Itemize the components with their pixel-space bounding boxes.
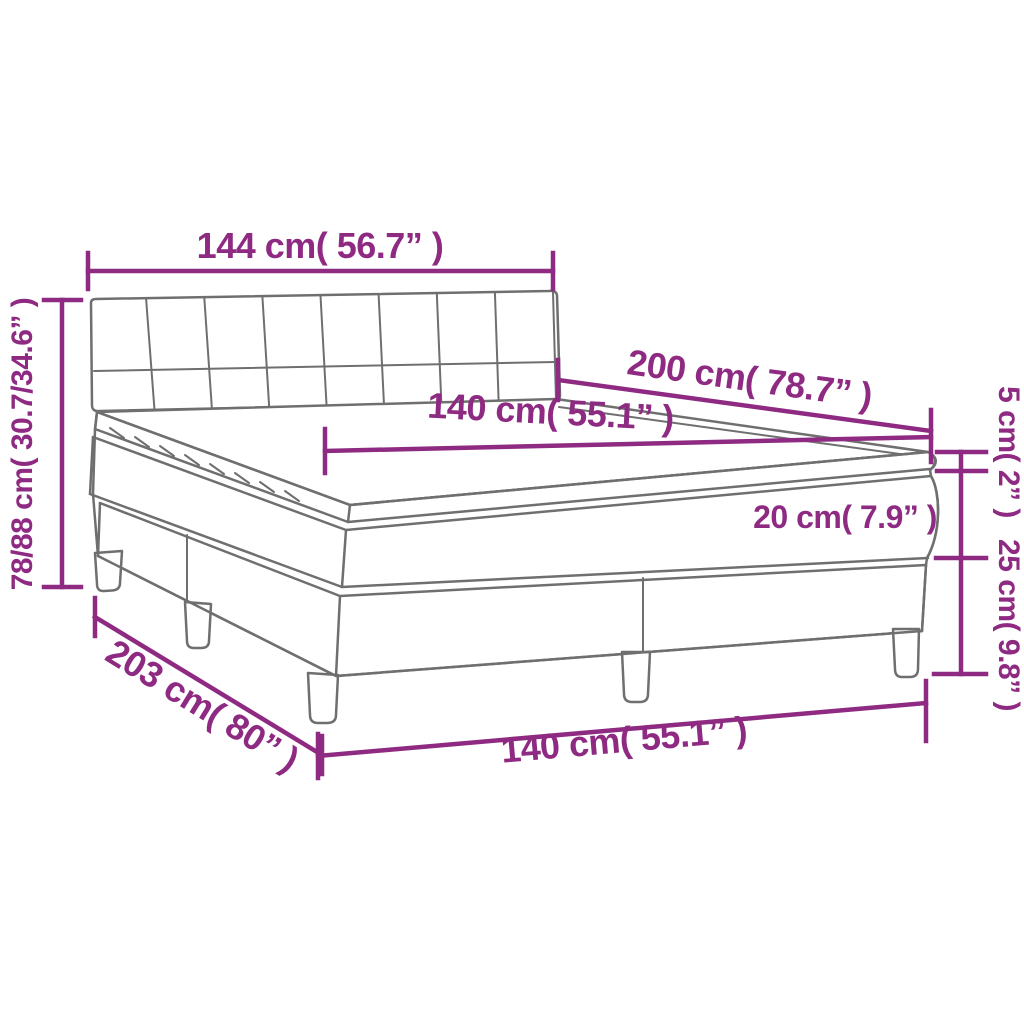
- bed-leg: [185, 602, 211, 648]
- bed-leg: [622, 652, 650, 702]
- bed-leg: [893, 629, 919, 677]
- bed-leg: [308, 673, 338, 723]
- dim-label-headboard-width: 144 cm( 56.7” ): [197, 225, 444, 266]
- dim-label-mattress-height: 20 cm( 7.9” ): [753, 499, 937, 535]
- dim-label-total-length: 203 cm( 80” ): [99, 631, 306, 780]
- dim-label-base-height: 25 cm( 9.8” ): [992, 539, 1024, 711]
- dim-headboard-width: 144 cm( 56.7” ): [88, 225, 553, 289]
- dim-height-stack: 5 cm( 2” ) 25 cm( 9.8” ): [934, 386, 1024, 711]
- dim-total-height: 78/88 cm( 30.7/34.6” ): [6, 298, 81, 591]
- dim-label-topper-height: 5 cm( 2” ): [992, 386, 1024, 518]
- dim-label-width-bottom: 140 cm( 55.1” ): [499, 708, 748, 770]
- bed-dimension-diagram: 144 cm( 56.7” ) 78/88 cm( 30.7/34.6” ) 2…: [0, 0, 1024, 1024]
- dim-width-bottom: 140 cm( 55.1” ): [318, 681, 926, 778]
- dim-label-total-height: 78/88 cm( 30.7/34.6” ): [6, 298, 39, 591]
- diagram-canvas: 144 cm( 56.7” ) 78/88 cm( 30.7/34.6” ) 2…: [0, 0, 1024, 1024]
